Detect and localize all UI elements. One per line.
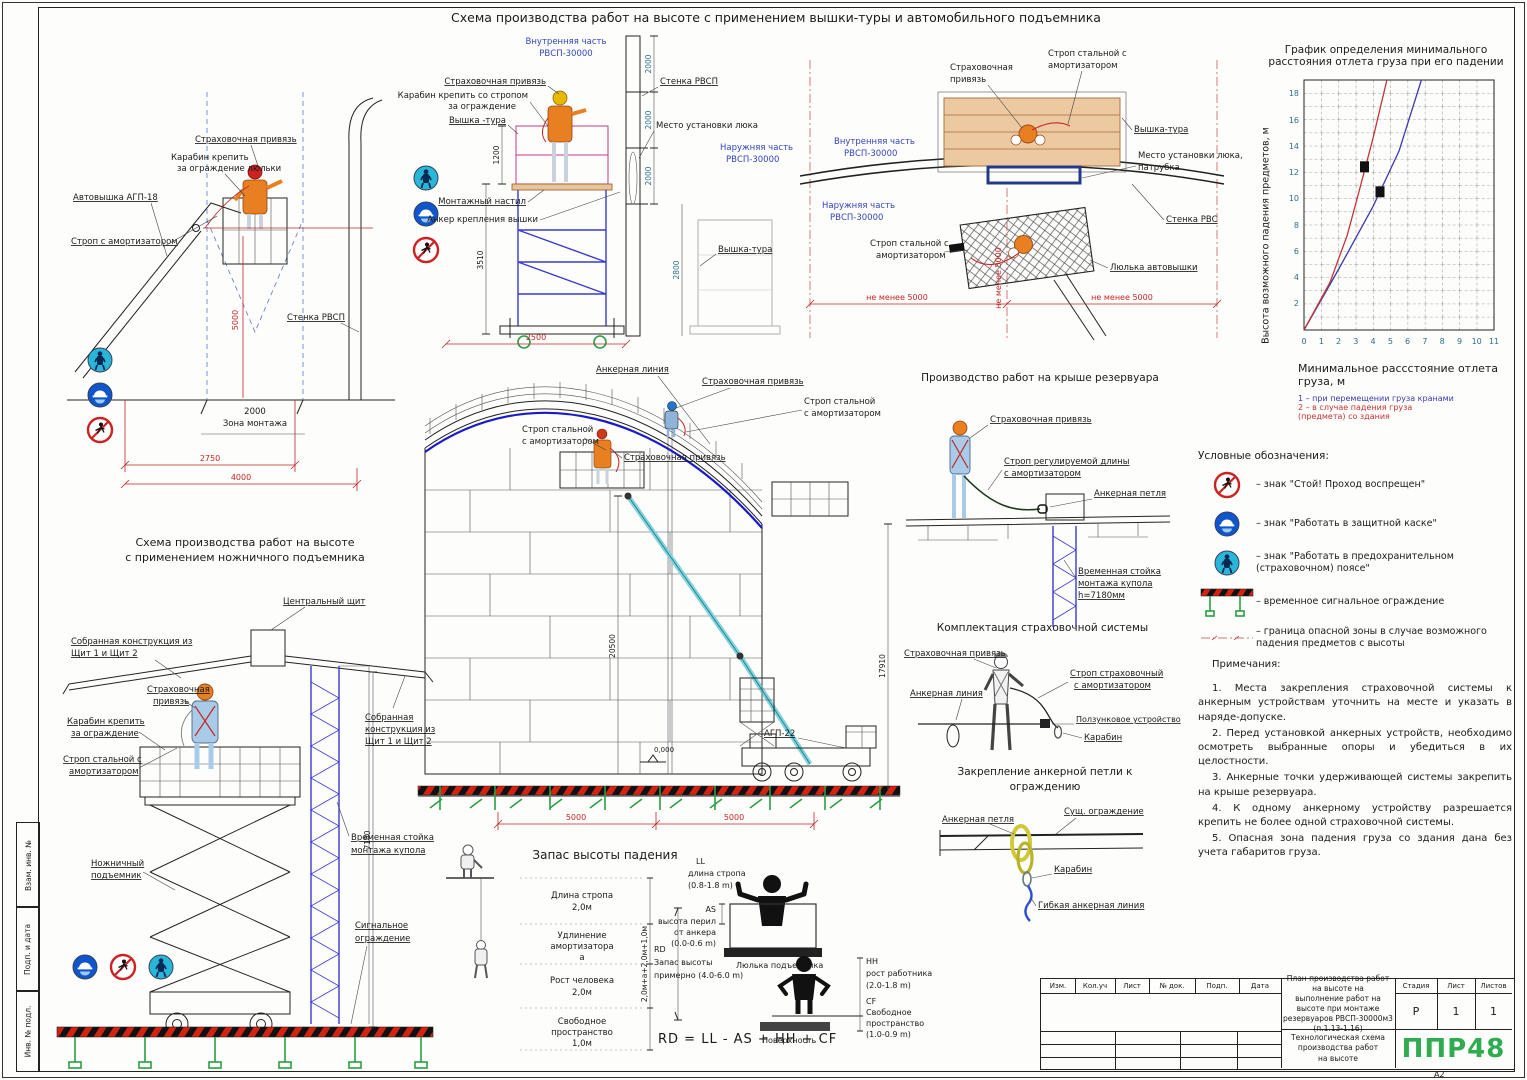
svg-text:с амортизатором: с амортизатором bbox=[1004, 469, 1081, 479]
svg-text:Щит 1 и Щит 2: Щит 1 и Щит 2 bbox=[71, 649, 138, 659]
svg-text:не менее 5000: не менее 5000 bbox=[866, 293, 928, 302]
svg-text:5000: 5000 bbox=[566, 813, 586, 822]
svg-text:Собранная: Собранная bbox=[365, 713, 413, 723]
svg-text:Страховочная привязь: Страховочная привязь bbox=[990, 415, 1092, 425]
diagram-tower: 2000 2000 2000 2800 bbox=[398, 30, 788, 352]
figure-hanging bbox=[475, 941, 487, 979]
svg-text:не менее 5000: не менее 5000 bbox=[994, 247, 1003, 309]
svg-text:Длина стропа: Длина стропа bbox=[551, 891, 613, 901]
svg-text:длина стропа: длина стропа bbox=[688, 869, 746, 878]
svg-text:2,0м+а+2,0м+1,0м: 2,0м+а+2,0м+1,0м bbox=[640, 926, 649, 1002]
strop bbox=[964, 476, 1040, 510]
svg-text:1,0м: 1,0м bbox=[572, 1039, 592, 1049]
callouts: Анкерная петля Сущ. ограждение Карабин Г… bbox=[942, 807, 1144, 911]
svg-text:Страховочная привязь: Страховочная привязь bbox=[444, 77, 546, 87]
svg-text:примерно (4.0-6.0 m): примерно (4.0-6.0 m) bbox=[654, 971, 743, 980]
worker bbox=[950, 421, 970, 518]
svg-text:привязь: привязь bbox=[950, 75, 986, 85]
worker-outline bbox=[985, 652, 1023, 750]
strop bbox=[1010, 688, 1058, 728]
svg-text:ограждение: ограждение bbox=[355, 934, 410, 944]
svg-text:Свободное: Свободное bbox=[866, 1008, 912, 1017]
tb-doc-title: План производства работ на высоте на вып… bbox=[1281, 979, 1395, 1030]
ground bbox=[418, 786, 900, 810]
svg-text:Карабин: Карабин bbox=[1084, 733, 1122, 743]
danger-boundary-icon bbox=[1200, 632, 1254, 644]
svg-text:за ограждение люльки: за ограждение люльки bbox=[177, 164, 281, 174]
diagram-scissor-lift: 7180 Центральный щит Собранная конструкц… bbox=[55, 572, 435, 1069]
sign-stop-icon bbox=[111, 955, 135, 979]
sign-harness-icon bbox=[149, 955, 173, 979]
svg-text:Анкер крепления вышки: Анкер крепления вышки bbox=[427, 215, 538, 225]
column-stub bbox=[1046, 494, 1084, 520]
svg-text:2000: 2000 bbox=[644, 110, 653, 129]
svg-text:Страховочная привязь: Страховочная привязь bbox=[195, 135, 297, 145]
legend-item-harness: – знак "Работать в предохранительном (ст… bbox=[1198, 548, 1513, 578]
svg-text:амортизатором: амортизатором bbox=[69, 767, 139, 777]
svg-text:монтажа купола: монтажа купола bbox=[1078, 579, 1152, 589]
note-4: 4. К одному анкерному устройству разреша… bbox=[1198, 802, 1512, 830]
outer-tower bbox=[690, 220, 780, 334]
scissor-lift bbox=[140, 747, 300, 1035]
scissor-title-1: Схема производства работ на высоте bbox=[75, 536, 415, 549]
worker bbox=[542, 91, 586, 182]
drawing-sheet: Взам. инв. № Подп. и дата Инв. № подл. С… bbox=[0, 0, 1527, 1080]
svg-text:Вышка-тура: Вышка-тура bbox=[718, 245, 772, 255]
svg-text:10: 10 bbox=[1289, 194, 1299, 203]
svg-text:7: 7 bbox=[1422, 337, 1427, 346]
svg-text:Строп стальной с: Строп стальной с bbox=[63, 755, 142, 765]
svg-text:18: 18 bbox=[1289, 89, 1299, 98]
svg-text:Карабин крепить со стропом: Карабин крепить со стропом bbox=[398, 91, 528, 101]
svg-text:РВСП-30000: РВСП-30000 bbox=[726, 155, 779, 165]
svg-text:5000: 5000 bbox=[231, 310, 240, 330]
svg-text:9: 9 bbox=[1457, 337, 1462, 346]
svg-text:Стенка РВС: Стенка РВС bbox=[1166, 215, 1218, 225]
svg-text:Карабин: Карабин bbox=[1054, 865, 1092, 875]
svg-text:2,0м: 2,0м bbox=[572, 903, 592, 913]
svg-text:Строп стальной: Строп стальной bbox=[804, 397, 875, 407]
svg-text:(2.0-1.8 m): (2.0-1.8 m) bbox=[866, 981, 911, 990]
svg-text:с амортизатором: с амортизатором bbox=[522, 437, 599, 447]
svg-text:привязь: привязь bbox=[153, 697, 189, 707]
svg-text:Строп стальной с: Строп стальной с bbox=[870, 239, 949, 249]
svg-text:рост работника: рост работника bbox=[866, 969, 932, 978]
svg-text:6: 6 bbox=[1405, 337, 1410, 346]
svg-text:Страховочная: Страховочная bbox=[147, 685, 210, 695]
boom bbox=[625, 493, 811, 765]
svg-text:Место установки люка,: Место установки люка, bbox=[1138, 151, 1243, 161]
svg-text:RD: RD bbox=[654, 945, 666, 954]
svg-text:Страховочная привязь: Страховочная привязь bbox=[624, 453, 726, 463]
svg-text:патрубка: патрубка bbox=[1138, 163, 1180, 173]
rail bbox=[940, 830, 1143, 856]
sign-helmet-icon bbox=[1212, 509, 1242, 539]
svg-text:Внутренняя часть: Внутренняя часть bbox=[834, 137, 915, 147]
chart-legend-2b: (предмета) со здания bbox=[1298, 412, 1510, 421]
diagram-auto-lift: 5000 2000 Зона монтажа 2750 4000 Страхов… bbox=[55, 70, 405, 515]
legend-item-stop: – знак "Стой! Проход воспрещен" bbox=[1198, 470, 1513, 500]
svg-text:Анкерная петля: Анкерная петля bbox=[1094, 489, 1166, 499]
svg-text:0,000: 0,000 bbox=[654, 746, 674, 754]
svg-text:амортизатора: амортизатора bbox=[550, 942, 613, 952]
barrier-icon bbox=[1200, 587, 1254, 617]
svg-text:Карабин крепить: Карабин крепить bbox=[171, 153, 249, 163]
boom-top-view bbox=[1054, 274, 1106, 340]
svg-text:Строп стальной с: Строп стальной с bbox=[1048, 49, 1127, 59]
svg-text:Ножничный: Ножничный bbox=[91, 859, 144, 869]
basket-top-view bbox=[946, 208, 1094, 291]
svg-text:РВСП-30000: РВСП-30000 bbox=[539, 49, 592, 59]
svg-text:17910: 17910 bbox=[878, 654, 887, 678]
callouts: Внутренняя часть РВСП-30000 Стенка РВСП … bbox=[398, 37, 793, 266]
dim-5000-vert: 5000 bbox=[231, 236, 243, 398]
roof-work-title: Производство работ на крыше резервуара bbox=[900, 372, 1180, 384]
svg-text:16: 16 bbox=[1289, 116, 1299, 125]
svg-text:4: 4 bbox=[1294, 273, 1299, 282]
svg-text:LL: LL bbox=[696, 857, 705, 866]
svg-text:1200: 1200 bbox=[492, 145, 501, 164]
note-2: 2. Перед установкой анкерных устройств, … bbox=[1198, 727, 1512, 770]
sheet-title: Схема производства работ на высоте с при… bbox=[40, 10, 1512, 25]
svg-text:РВСП-30000: РВСП-30000 bbox=[830, 213, 883, 223]
tb-head-listov: Листов bbox=[1475, 979, 1512, 994]
fall-formula: RD = LL - AS + HH + CF bbox=[658, 1032, 837, 1047]
tb-head-data: Дата bbox=[1239, 979, 1282, 994]
loop-title-1: Закрепление анкерной петли к bbox=[930, 766, 1160, 778]
note-5: 5. Опасная зона падения груза со здания … bbox=[1198, 832, 1512, 860]
temp-truss bbox=[311, 666, 369, 1024]
svg-text:3: 3 bbox=[1353, 337, 1358, 346]
rope bbox=[1025, 886, 1031, 921]
svg-text:монтажа купола: монтажа купола bbox=[351, 846, 425, 856]
fall-clearance-left: Длина стропа 2,0м Удлинение амортизатора… bbox=[428, 838, 658, 1068]
sign-harness-icon bbox=[1212, 548, 1242, 578]
svg-text:2800: 2800 bbox=[672, 260, 681, 279]
truss bbox=[1053, 526, 1076, 627]
svg-text:Вышка -тура: Вышка -тура bbox=[449, 116, 506, 126]
legend-item-boundary: – граница опасной зоны в случае возможно… bbox=[1198, 626, 1513, 650]
diagram-roof-work: Страховочная привязь Строп регулируемой … bbox=[898, 392, 1178, 627]
legend-section: Условные обозначения: – знак "Стой! Прох… bbox=[1198, 450, 1513, 659]
tb-head-list: Лист bbox=[1115, 979, 1150, 994]
note-1: 1. Места закрепления страховочной систем… bbox=[1198, 682, 1512, 725]
fall-clearance-right: LL длина стропа (0.8-1.8 m) AS высота пе… bbox=[652, 852, 932, 1052]
svg-text:амортизатором: амортизатором bbox=[1048, 61, 1118, 71]
tb-head-izm: Изм. bbox=[1041, 979, 1076, 994]
tb-value-listov: 1 bbox=[1475, 993, 1512, 1030]
callouts: Страховочная привязь Анкерная линия Стро… bbox=[904, 649, 1181, 743]
dim-texts: Длина стропа 2,0м Удлинение амортизатора… bbox=[550, 891, 614, 1049]
legend-title: Условные обозначения: bbox=[1198, 450, 1513, 462]
tb-head-list2: Лист bbox=[1437, 979, 1476, 994]
hatch-opening bbox=[988, 167, 1080, 183]
svg-text:с амортизатором: с амортизатором bbox=[1074, 681, 1151, 691]
chart-title-line1: График определения минимального bbox=[1248, 44, 1510, 56]
svg-text:Анкерная линия: Анкерная линия bbox=[596, 365, 669, 375]
svg-text:2000: 2000 bbox=[244, 407, 266, 417]
svg-text:Вышка-тура: Вышка-тура bbox=[1134, 125, 1188, 135]
chart-legend-1: 1 – при перемещении груза кранами bbox=[1298, 394, 1510, 403]
legend-item-helmet: – знак "Работать в защитной каске" bbox=[1198, 509, 1513, 539]
chart-title-line2: расстояния отлета груза при его падении bbox=[1248, 56, 1510, 68]
svg-text:Люлька автовышки: Люлька автовышки bbox=[1110, 263, 1198, 273]
svg-text:от анкера: от анкера bbox=[674, 928, 716, 937]
svg-text:высота перил: высота перил bbox=[658, 917, 716, 926]
barrier bbox=[57, 1027, 433, 1068]
tb-head-podp: Подп. bbox=[1195, 979, 1240, 994]
svg-text:HH: HH bbox=[866, 957, 878, 966]
svg-text:Страховочная: Страховочная bbox=[950, 63, 1013, 73]
svg-text:Строп с амортизатором: Строп с амортизатором bbox=[71, 237, 178, 247]
svg-text:Запас высоты: Запас высоты bbox=[654, 958, 712, 967]
svg-text:Зона монтажа: Зона монтажа bbox=[223, 419, 287, 429]
dims: 20500 17910 5000 5000 bbox=[494, 496, 892, 830]
svg-text:1: 1 bbox=[1319, 337, 1324, 346]
svg-text:5000: 5000 bbox=[724, 813, 744, 822]
svg-text:Строп страховочный: Строп страховочный bbox=[1070, 669, 1163, 679]
svg-text:Ползунковое устройство: Ползунковое устройство bbox=[1076, 715, 1181, 724]
notes-section: Примечания: 1. Места закрепления страхов… bbox=[1198, 658, 1512, 862]
svg-text:Место установки люка: Место установки люка bbox=[656, 121, 758, 131]
svg-text:h=7180мм: h=7180мм bbox=[1078, 591, 1125, 601]
svg-text:2000: 2000 bbox=[644, 54, 653, 73]
svg-text:Наружняя часть: Наружняя часть bbox=[822, 201, 895, 211]
margin-stamp-inv: Инв. № подл. bbox=[16, 990, 40, 1072]
callouts: Страховочная привязь Карабин крепить за … bbox=[71, 135, 359, 332]
diagram-tank: 0,000 20500 17910 5000 5000 Анкерная лин… bbox=[410, 356, 908, 836]
svg-text:8: 8 bbox=[1294, 221, 1299, 230]
sign-helmet-icon bbox=[88, 383, 112, 407]
scissor-title-2: с применением ножничного подъемника bbox=[75, 551, 415, 564]
svg-text:5: 5 bbox=[1388, 337, 1393, 346]
as-block: AS высота перил от анкера (0.0-0.6 m) bbox=[658, 904, 725, 948]
svg-text:не менее 5000: не менее 5000 bbox=[1091, 293, 1153, 302]
callouts: Анкерная линия Страховочная привязь Стро… bbox=[522, 365, 881, 748]
chart-legend-2a: 2 – в случае падения груза bbox=[1298, 403, 1510, 412]
svg-text:подъемник: подъемник bbox=[91, 871, 142, 881]
svg-text:с амортизатором: с амортизатором bbox=[804, 409, 881, 419]
svg-text:за ограждение: за ограждение bbox=[71, 729, 139, 739]
marker-2 bbox=[1376, 186, 1385, 197]
svg-text:АГП-22: АГП-22 bbox=[764, 729, 795, 739]
sign-stop-icon bbox=[88, 418, 112, 442]
loop-title-2: ограждению bbox=[930, 781, 1160, 793]
tb-head-kol: Кол.уч bbox=[1075, 979, 1116, 994]
diagram-safety-kit: Страховочная привязь Анкерная линия Стро… bbox=[898, 640, 1188, 774]
sign-stop-icon bbox=[1212, 470, 1242, 500]
svg-text:Удлинение: Удлинение bbox=[557, 931, 606, 941]
svg-text:Страховочная привязь: Страховочная привязь bbox=[702, 377, 804, 387]
svg-text:Анкерная линия: Анкерная линия bbox=[910, 689, 983, 699]
format-label: А2 bbox=[1434, 1070, 1445, 1079]
svg-text:10: 10 bbox=[1472, 337, 1482, 346]
grid bbox=[1304, 80, 1494, 330]
svg-text:4000: 4000 bbox=[231, 473, 251, 482]
cf-block: CF Свободное пространство (1.0-0.9 m) bbox=[857, 997, 924, 1039]
sign-harness-icon bbox=[88, 348, 112, 372]
svg-text:6: 6 bbox=[1294, 247, 1299, 256]
svg-text:12: 12 bbox=[1289, 168, 1299, 177]
svg-text:за ограждение: за ограждение bbox=[448, 102, 516, 112]
tank-wall bbox=[349, 98, 382, 400]
svg-text:Монтажный настил: Монтажный настил bbox=[438, 197, 526, 207]
svg-text:а: а bbox=[579, 953, 584, 963]
svg-text:2500: 2500 bbox=[526, 333, 546, 342]
svg-text:Сигнальное: Сигнальное bbox=[355, 921, 408, 931]
notes-title: Примечания: bbox=[1198, 658, 1512, 672]
sign-harness-icon bbox=[414, 166, 438, 190]
svg-text:2000: 2000 bbox=[644, 166, 653, 185]
svg-text:Строп стальной: Строп стальной bbox=[522, 425, 593, 435]
svg-text:Внутренняя часть: Внутренняя часть bbox=[526, 37, 607, 47]
svg-text:20500: 20500 bbox=[608, 634, 617, 658]
svg-text:Свободное: Свободное bbox=[558, 1017, 606, 1027]
roof-line bbox=[906, 516, 1170, 540]
tb-head-dok: № док. bbox=[1149, 979, 1196, 994]
title-block: Изм. Кол.уч Лист № док. Подп. Дата План … bbox=[1040, 978, 1515, 1070]
svg-text:2: 2 bbox=[1336, 337, 1341, 346]
svg-text:Автовышка АГП-18: Автовышка АГП-18 bbox=[73, 193, 158, 203]
svg-text:(0.8-1.8 m): (0.8-1.8 m) bbox=[688, 881, 733, 890]
svg-text:РВСП-30000: РВСП-30000 bbox=[844, 149, 897, 159]
svg-text:Центральный щит: Центральный щит bbox=[283, 597, 365, 607]
basket-floor bbox=[724, 948, 822, 957]
marker-1 bbox=[1360, 161, 1369, 172]
level-mark: 0,000 bbox=[640, 746, 674, 762]
slider-device bbox=[1040, 719, 1050, 728]
svg-text:AS: AS bbox=[705, 905, 716, 914]
svg-text:Анкерная петля: Анкерная петля bbox=[942, 815, 1014, 825]
svg-text:3510: 3510 bbox=[476, 250, 485, 269]
svg-text:0: 0 bbox=[1301, 337, 1306, 346]
figure-standing bbox=[446, 845, 494, 878]
svg-text:Рост человека: Рост человека bbox=[550, 976, 614, 986]
tb-value-stadiya: Р bbox=[1395, 993, 1438, 1030]
svg-text:(1.0-0.9 m): (1.0-0.9 m) bbox=[866, 1030, 911, 1039]
y-tick-labels: 2 4 6 8 10 12 14 16 18 bbox=[1289, 89, 1299, 308]
svg-text:14: 14 bbox=[1289, 142, 1299, 151]
svg-text:пространство: пространство bbox=[551, 1028, 613, 1038]
svg-text:Карабин крепить: Карабин крепить bbox=[67, 717, 145, 727]
svg-text:пространство: пространство bbox=[866, 1019, 924, 1028]
kit-title: Комплектация страховочной системы bbox=[900, 622, 1185, 634]
svg-text:2: 2 bbox=[1294, 299, 1299, 308]
tb-subtitle: Технологическая схема производства работ… bbox=[1281, 1029, 1395, 1068]
legend-item-barrier: – временное сигнальное ограждение bbox=[1198, 587, 1513, 617]
chart-xlabel-line2: груза, м bbox=[1298, 375, 1510, 388]
tb-logo: ППР48 bbox=[1395, 1029, 1512, 1068]
svg-text:амортизатором: амортизатором bbox=[876, 251, 946, 261]
svg-text:4: 4 bbox=[1371, 337, 1376, 346]
upper-silhouette bbox=[738, 875, 806, 926]
surface-bar bbox=[760, 1022, 830, 1031]
svg-text:Сущ. ограждение: Сущ. ограждение bbox=[1064, 807, 1144, 817]
svg-text:11: 11 bbox=[1489, 337, 1499, 346]
chart-plot: 2 4 6 8 10 12 14 16 18 0 1 2 3 4 5 6 7 8… bbox=[1262, 68, 1510, 358]
dim-4000: 4000 bbox=[121, 468, 361, 491]
diagram-roof-plan: не менее 5000 не менее 5000 не менее 500… bbox=[792, 38, 1232, 340]
svg-text:Страховочная привязь: Страховочная привязь bbox=[904, 649, 1006, 659]
margin-stamp-podp: Подп. и дата bbox=[16, 906, 40, 992]
sign-helmet-icon bbox=[73, 955, 97, 979]
svg-text:Стенка РВСП: Стенка РВСП bbox=[660, 77, 718, 87]
tower bbox=[500, 126, 624, 348]
svg-text:Стенка РВСП: Стенка РВСП bbox=[287, 313, 345, 323]
svg-text:2,0м: 2,0м bbox=[572, 988, 592, 998]
note-3: 3. Анкерные точки удерживающей системы з… bbox=[1198, 771, 1512, 799]
sign-stop-icon bbox=[414, 238, 438, 262]
svg-text:8: 8 bbox=[1440, 337, 1445, 346]
tb-value-list: 1 bbox=[1437, 993, 1476, 1030]
svg-text:CF: CF bbox=[866, 997, 877, 1006]
x-tick-labels: 0 1 2 3 4 5 6 7 8 9 10 11 bbox=[1301, 337, 1499, 346]
anchor-line bbox=[425, 413, 762, 528]
svg-text:Временная стойка: Временная стойка bbox=[1078, 567, 1161, 577]
margin-stamp-vzam: Взам. инв. № bbox=[16, 822, 40, 908]
svg-text:Собранная конструкция из: Собранная конструкция из bbox=[71, 637, 193, 647]
chart-xlabel-line1: Минимальное рассстояние отлета bbox=[1298, 362, 1510, 375]
anchor-line bbox=[918, 719, 1050, 747]
tb-head-stadiya: Стадия bbox=[1395, 979, 1438, 994]
dim-zona: 2000 Зона монтажа bbox=[201, 400, 305, 434]
svg-text:Наружняя часть: Наружняя часть bbox=[720, 143, 793, 153]
svg-text:2750: 2750 bbox=[200, 454, 220, 463]
diagram-anchor-loop: Анкерная петля Сущ. ограждение Карабин Г… bbox=[928, 798, 1163, 923]
chart-section: График определения минимального расстоян… bbox=[1248, 44, 1510, 421]
dim-2750: 2750 bbox=[121, 400, 299, 472]
svg-text:Гибкая анкерная линия: Гибкая анкерная линия bbox=[1038, 901, 1144, 911]
chart-ylabel: Высота возможного падения предметов, м bbox=[1261, 86, 1272, 386]
svg-text:Строп регулируемой длины: Строп регулируемой длины bbox=[1004, 457, 1129, 467]
